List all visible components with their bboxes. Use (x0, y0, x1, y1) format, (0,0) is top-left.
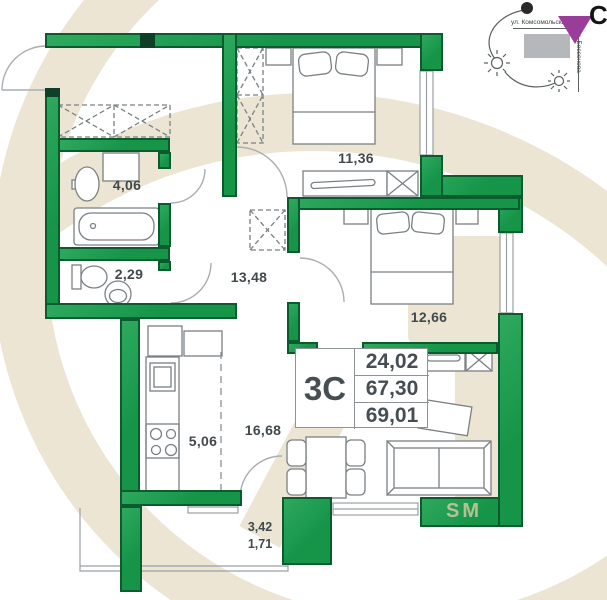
bedroom1-door (237, 147, 287, 197)
north-triangle-icon (558, 16, 592, 44)
sun-icon (548, 70, 570, 92)
kitchen-cabinet (184, 331, 222, 356)
dining-chair (287, 440, 306, 466)
sofa (387, 441, 491, 495)
wall-bathroom-bottom (58, 247, 170, 261)
bedroom2-bed (371, 208, 453, 304)
wall-bottom-left (120, 490, 242, 506)
north-label: С (589, 0, 607, 31)
apartment-info-box: 3С 24,02 67,30 69,01 (295, 348, 428, 428)
wall-wc-right-stub (158, 261, 171, 271)
wall-bedroom2-left-upper (287, 197, 300, 253)
bathroom-sink (72, 167, 99, 201)
sun-path-diagram (0, 0, 607, 110)
watermark-text: SM (446, 500, 482, 523)
balcony-door (240, 456, 282, 498)
balcony-area-full: 3,42 (248, 519, 272, 536)
room-label-living: 16,68 (245, 422, 282, 438)
dining-table (306, 437, 346, 498)
wall-bedroom2-top (287, 197, 520, 210)
wall-bedroom1-right-bottom (420, 155, 443, 197)
wall-bathroom-right-stub (158, 152, 171, 169)
room-label-bedroom1: 11,36 (338, 150, 374, 166)
wall-bathroom-top (58, 138, 170, 152)
wall-balcony-pier-left (120, 506, 142, 592)
wall-left (45, 88, 60, 318)
bedroom2-door (300, 258, 344, 302)
dining-chair (346, 440, 365, 466)
toilet (72, 265, 107, 289)
bedroom2-nightstand-left (344, 208, 368, 224)
bedroom1-dresser-tv (303, 171, 387, 196)
bedroom2-window (500, 233, 513, 313)
bedroom2-nightstand-right (456, 208, 478, 224)
dining-chair (287, 469, 306, 495)
wall-kitchen-left (120, 319, 140, 496)
sun-path-arc (489, 10, 524, 63)
dining-chair (346, 469, 365, 495)
living-room-window (333, 503, 418, 515)
wc-door (171, 263, 211, 303)
wall-bathroom-right (158, 203, 171, 247)
apartment-area: 67,30 (355, 376, 429, 403)
room-label-bedroom2: 12,66 (411, 309, 448, 325)
apartment-living-area: 24,02 (355, 349, 429, 376)
corridor-closet (250, 210, 285, 250)
bathtub (74, 208, 159, 245)
balcony-area-coeff: 1,71 (248, 536, 272, 553)
sun-icon (484, 50, 510, 76)
apartment-total-area: 69,01 (355, 403, 429, 429)
room-label-hall: 13,48 (231, 269, 268, 285)
moon-icon (521, 2, 533, 14)
bedroom1-storage-box (387, 171, 418, 196)
room-label-kitchen: 5,06 (189, 433, 217, 449)
sun-path-arc (505, 72, 559, 87)
room-label-bathroom: 4,06 (113, 177, 141, 193)
wall-wc-bottom (45, 303, 237, 319)
wall-right-lower (498, 313, 523, 527)
bathroom-door (171, 169, 205, 203)
wall-balcony-pier-right (282, 497, 332, 565)
room-label-balcony: 3,42 1,71 (248, 519, 272, 553)
wall-bedroom2-left-lower (287, 302, 300, 342)
floor-plan: SM 4,06 2,29 11,36 13,48 12,66 5,06 16,6… (0, 0, 607, 600)
kitchen-counter (146, 357, 179, 500)
fridge (148, 326, 182, 356)
room-label-wc: 2,29 (115, 266, 143, 282)
apartment-type-label: 3С (296, 349, 355, 429)
